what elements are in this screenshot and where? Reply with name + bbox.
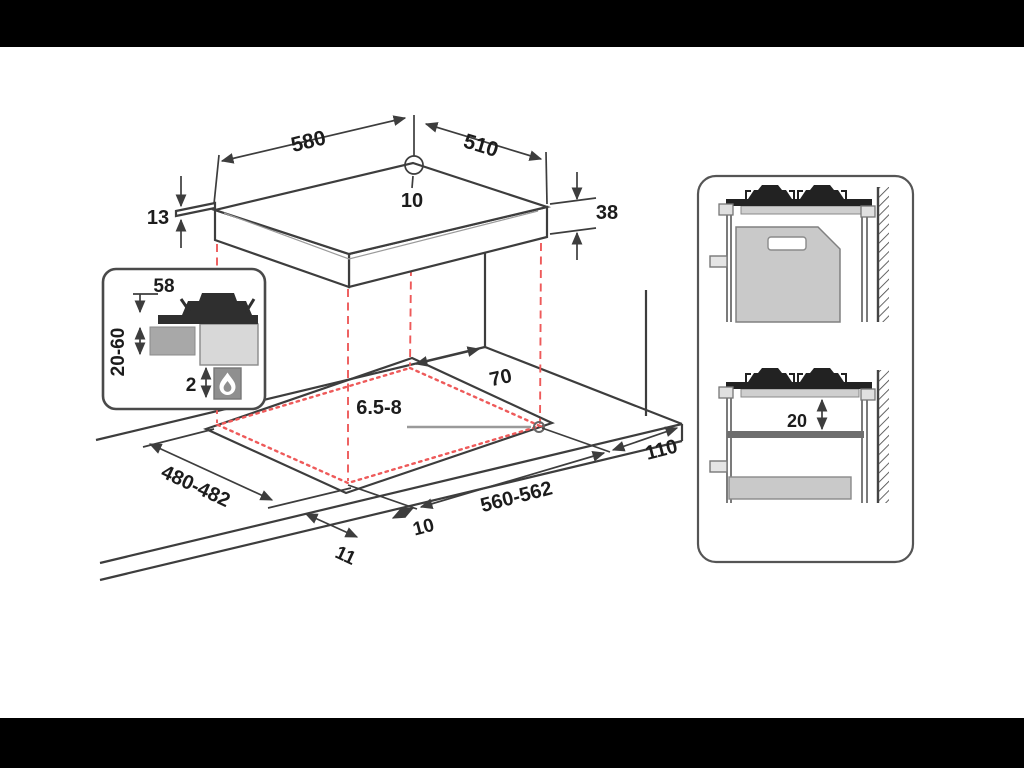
sideview-label-20: 20: [787, 411, 807, 431]
side-view-shelf-below: [710, 368, 889, 503]
dim-label-height-38: 38: [596, 202, 618, 224]
hob-body-band: [741, 206, 861, 214]
hob-body-section: [200, 324, 258, 365]
worktop-section-block: [150, 327, 195, 355]
gas-inlet-stub: [710, 461, 727, 472]
side-view-oven-below: [710, 185, 889, 322]
fixing-clamp-left: [719, 204, 733, 215]
wall-hatching: [879, 187, 889, 322]
wall-hatching: [879, 370, 889, 503]
support-shelf: [727, 431, 864, 438]
cutout-label-70: 70: [488, 365, 514, 391]
drawer-panel: [729, 477, 851, 499]
screenshot-stage: 580 510 10 13 38 58 20-60 2 70 6.5-8 480…: [0, 0, 1024, 768]
dim-label-rim-13: 13: [147, 207, 169, 229]
dim-label-hole-10: 10: [401, 190, 423, 212]
hob-glass-band: [726, 199, 872, 206]
gas-inlet-stub: [710, 256, 727, 267]
fixing-clamp-right: [861, 389, 875, 400]
oven-vent-label: [768, 237, 806, 250]
hob-body-band: [741, 389, 859, 397]
hob-glass-section: [158, 315, 258, 324]
installation-diagram: 580 510 10 13 38 58 20-60 2 70 6.5-8 480…: [0, 0, 1024, 768]
inset-label-58: 58: [153, 276, 174, 297]
inset-label-20-60: 20-60: [108, 328, 129, 377]
fixing-clamp-left: [719, 387, 733, 398]
inset-label-2: 2: [186, 375, 197, 396]
cabinet-side-views-panel: [698, 176, 913, 562]
cutout-label-6-5-8: 6.5-8: [356, 397, 402, 419]
fixing-clamp-right: [861, 206, 875, 217]
hob-glass-band: [726, 382, 872, 389]
